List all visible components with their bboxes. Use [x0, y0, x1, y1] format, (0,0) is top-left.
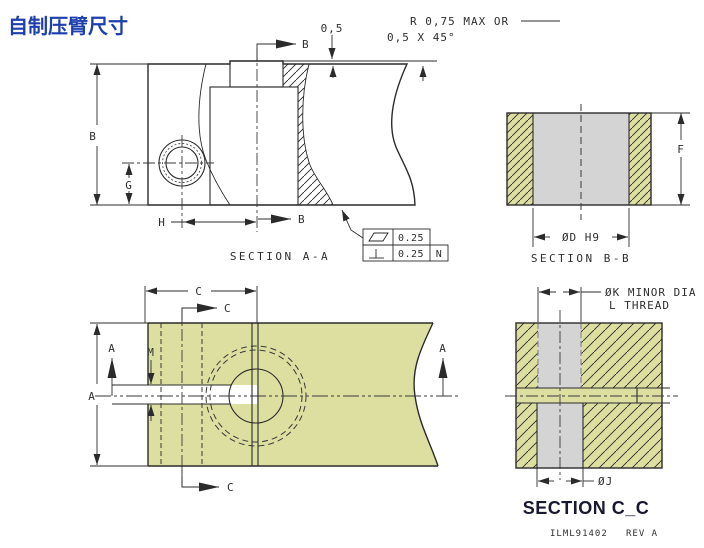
fcf-perpendicularity-value: 0.25	[398, 249, 424, 260]
cut-arrow-c-bottom-label: C	[227, 481, 235, 494]
break-line-aa	[199, 64, 230, 205]
section-cc-view: ØK MINOR DIA L THREAD ØJ SECTION C_C ILM…	[505, 286, 696, 539]
engineering-drawing: 自制压臂尺寸 R 0,75 MAX OR 0,5 X 45° 0,5	[0, 0, 704, 548]
revision-label: REV A	[626, 529, 658, 539]
page-title: 自制压臂尺寸	[8, 14, 128, 38]
dim-d-label: ØD H9	[562, 231, 600, 244]
drawing-canvas: 自制压臂尺寸 R 0,75 MAX OR 0,5 X 45° 0,5	[0, 0, 704, 548]
cut-arrow-a-left-label: A	[108, 342, 116, 355]
flatness-icon	[369, 233, 388, 241]
cut-arrow-b-bottom-label: B	[298, 213, 306, 226]
section-cc-label: SECTION C_C	[523, 498, 650, 518]
dim-h-label: H	[158, 216, 166, 229]
cc-thread-channel	[538, 323, 581, 388]
chamfer-note: 0,5 X 45°	[387, 31, 456, 44]
part-body-aa	[148, 61, 415, 205]
dim-g-label: G	[125, 179, 133, 192]
section-bb-label: SECTION B-B	[531, 252, 631, 265]
plan-view	[95, 308, 458, 487]
dim-c-label: C	[195, 285, 203, 298]
dim-k-label: ØK MINOR DIA	[605, 286, 696, 299]
section-aa-dimensions: 0,5 B B G H B SECTION A-A	[89, 22, 343, 263]
insert-column	[210, 87, 298, 205]
fcf-datum-label: N	[436, 249, 443, 260]
hatch-band-aa	[283, 64, 333, 205]
thread-note-label: L THREAD	[609, 299, 670, 312]
section-bb-view: F ØD H9 SECTION B-B	[507, 104, 690, 265]
cut-arrow-a-right-label: A	[439, 342, 447, 355]
doc-number: ILML91402	[550, 529, 608, 539]
radius-note: R 0,75 MAX OR	[410, 15, 509, 28]
feature-control-frames: 0.25 0.25 N	[342, 210, 448, 261]
perpendicularity-icon	[369, 249, 384, 258]
cut-arrow-b-top-label: B	[302, 38, 310, 51]
dim-m-label: M	[147, 346, 155, 359]
insert-stub	[230, 61, 283, 87]
top-notes: R 0,75 MAX OR 0,5 X 45°	[387, 15, 560, 81]
dim-a-label: A	[88, 390, 96, 403]
section-aa-view	[122, 48, 437, 232]
fcf-flatness-value: 0.25	[398, 233, 424, 244]
section-aa-label: SECTION A-A	[230, 250, 330, 263]
dim-b-label: B	[89, 130, 97, 143]
dim-f-label: F	[677, 143, 685, 156]
cut-arrow-c-top-label: C	[224, 302, 232, 315]
protrusion-dim-label: 0,5	[321, 22, 344, 35]
dim-j-label: ØJ	[598, 475, 613, 488]
